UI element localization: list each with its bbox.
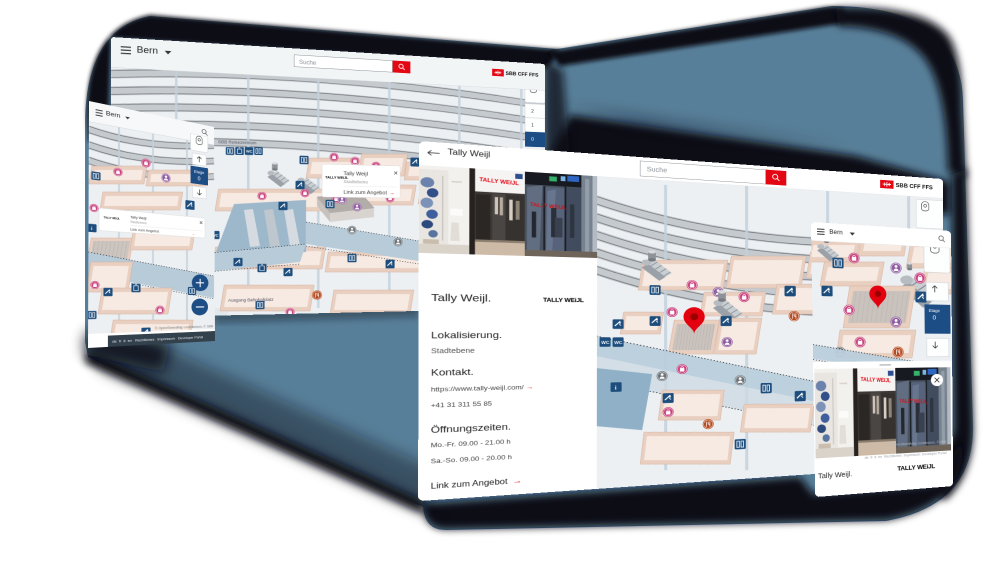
svg-text:SBB CFF FFS: SBB CFF FFS — [896, 182, 933, 191]
svg-text:Stadtebene: Stadtebene — [343, 179, 368, 185]
svg-text:0: 0 — [933, 314, 937, 321]
svg-text:SBB CFF FFS: SBB CFF FFS — [506, 71, 539, 78]
svg-text:→: → — [389, 190, 394, 196]
svg-text:SBB Reisezentrum: SBB Reisezentrum — [218, 139, 257, 145]
svg-text:Link zum Angebot: Link zum Angebot — [343, 190, 387, 197]
svg-text:→: → — [192, 232, 195, 236]
svg-text:Tally Weijl: Tally Weijl — [343, 171, 367, 177]
svg-text:Ausgang Bahnhofplatz: Ausgang Bahnhofplatz — [228, 298, 274, 304]
svg-text:0: 0 — [198, 176, 201, 182]
